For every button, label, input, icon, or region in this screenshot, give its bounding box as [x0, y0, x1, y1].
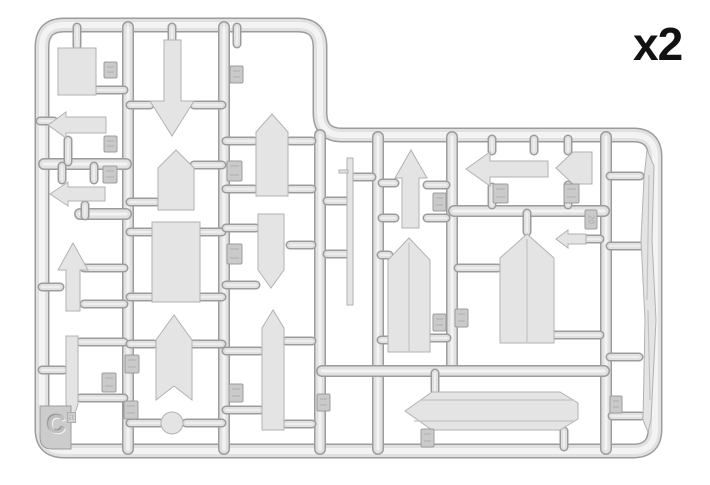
part-number-tab-8	[102, 373, 116, 392]
part-number-tab-3	[230, 66, 243, 83]
disc-part	[161, 412, 183, 434]
sprue-parts-diagram: 20 x2 Ca	[0, 0, 710, 485]
arrow-sign-left-b	[50, 182, 105, 206]
quantity-label: x2	[633, 18, 703, 70]
pentagon-sign-col3-down	[258, 214, 284, 288]
sprue-svg: 20	[0, 0, 710, 485]
small-arrow-left	[556, 230, 586, 248]
tall-plank-sign	[262, 310, 284, 430]
part-number-tab-label-14: 20	[587, 215, 596, 224]
sprue-letter-tab: Ca	[47, 411, 76, 437]
part-number-tab-7	[124, 401, 138, 419]
arrow-sign-up-shaft	[395, 150, 427, 228]
arrow-sign-left-a	[48, 112, 106, 138]
part-number-tab-13	[564, 184, 579, 203]
part-number-tab-15	[433, 314, 446, 331]
big-rect-sign	[152, 222, 200, 302]
part-number-tab-5	[227, 244, 242, 264]
small-rect-sign	[58, 48, 96, 95]
part-number-tab-1	[104, 136, 117, 152]
big-arrow-down	[150, 40, 194, 136]
swallowtail-banner-sign	[156, 315, 192, 400]
long-arrow-sign-left	[466, 152, 548, 186]
part-number-tab-4	[227, 161, 242, 181]
part-number-tab-0	[104, 62, 117, 78]
part-number-tab-12	[493, 184, 508, 203]
pennant-arrow-sign	[556, 152, 592, 184]
thin-pole	[347, 158, 353, 305]
part-number-tab-17	[421, 429, 434, 447]
part-number-tab-10	[317, 394, 330, 411]
part-number-tab-11	[433, 193, 446, 211]
pole-crossbar	[339, 170, 348, 173]
sprue-letter-sub: a	[67, 412, 77, 423]
pentagon-sign-col3-top	[256, 114, 288, 196]
part-number-tab-6	[125, 355, 139, 373]
part-number-tab-9	[229, 384, 243, 402]
sprue-letter: C	[47, 409, 66, 439]
part-number-tab-16	[455, 309, 468, 327]
long-plank-sign	[405, 392, 578, 430]
pentagon-sign-small	[158, 150, 194, 210]
part-number-tab-2	[103, 166, 117, 183]
part-number-tab-18	[610, 396, 622, 413]
